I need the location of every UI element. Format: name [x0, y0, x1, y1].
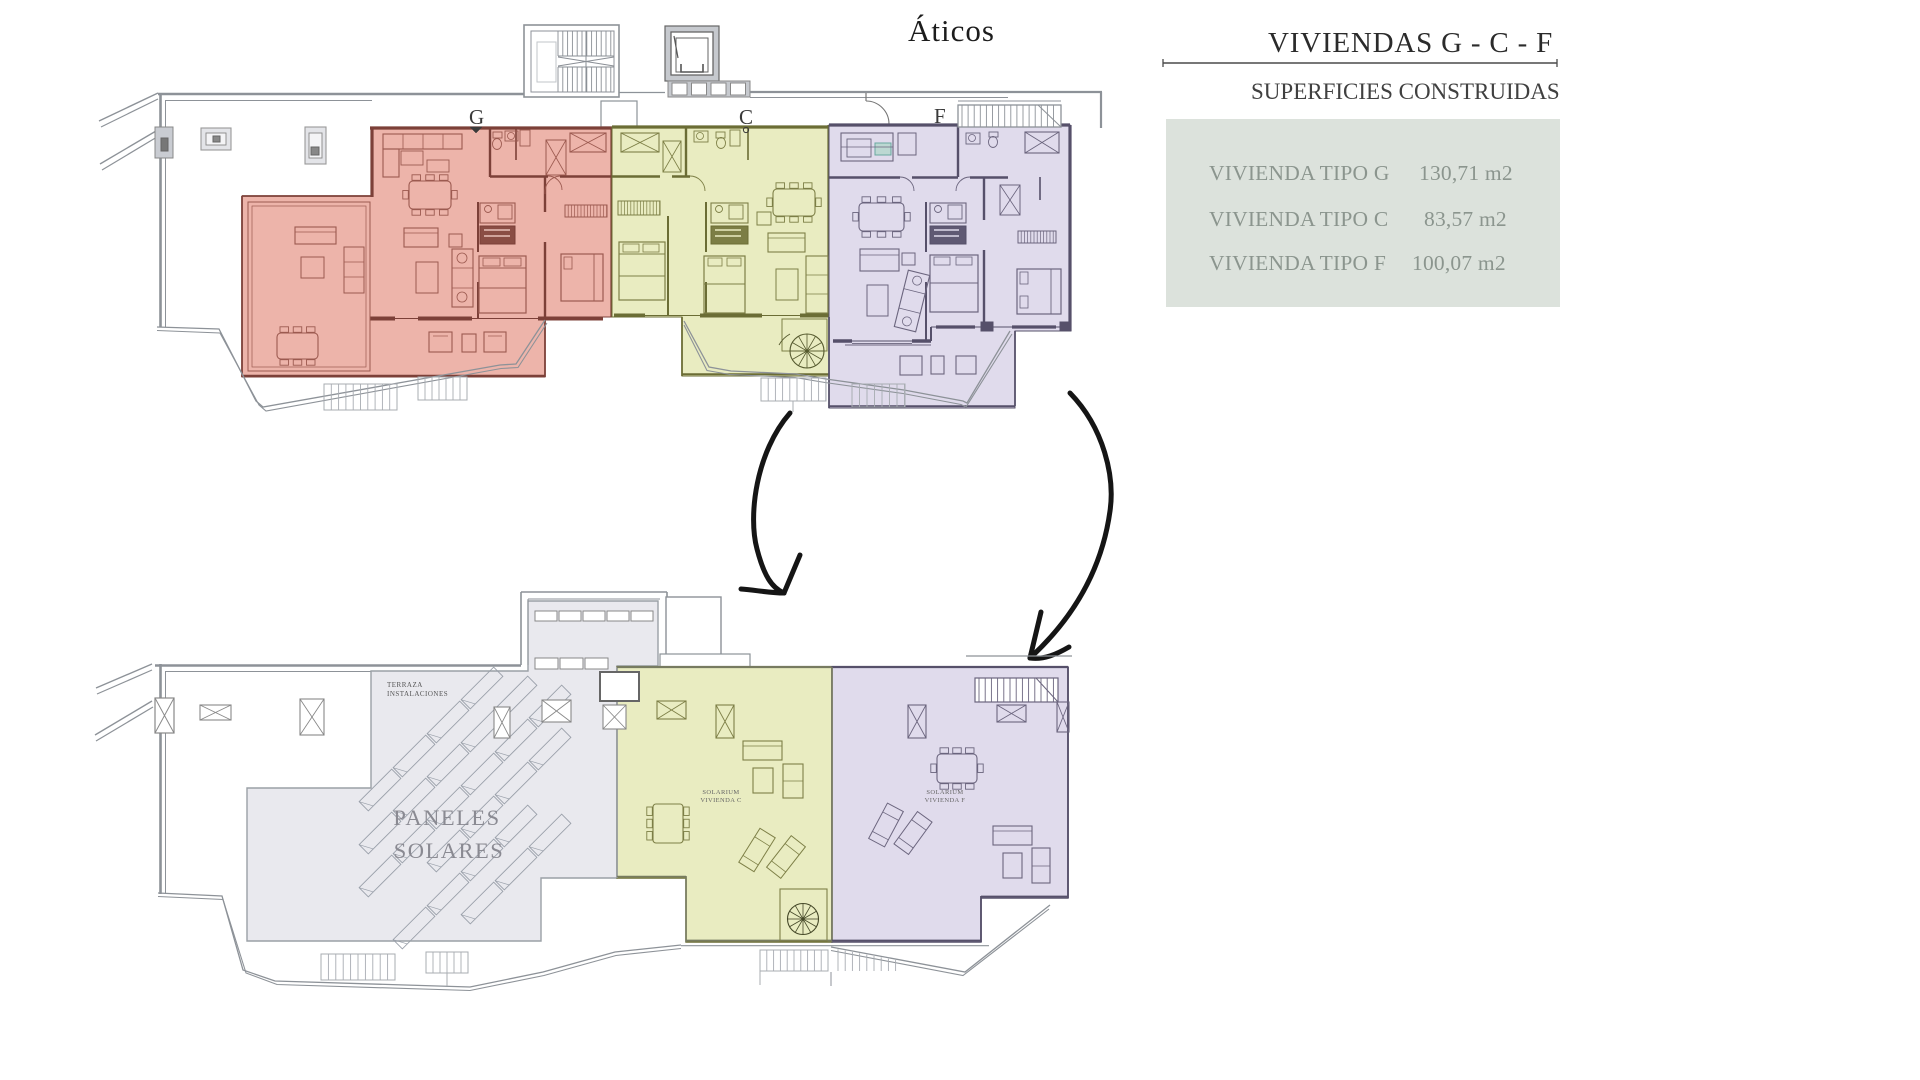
svg-text:TERRAZA: TERRAZA	[387, 681, 423, 689]
svg-text:83,57 m2: 83,57 m2	[1424, 207, 1507, 231]
svg-text:VIVIENDAS G - C - F: VIVIENDAS G - C - F	[1268, 27, 1553, 59]
svg-text:130,71 m2: 130,71 m2	[1419, 161, 1513, 185]
svg-text:F: F	[934, 104, 946, 128]
svg-text:SOLARES: SOLARES	[394, 838, 505, 863]
svg-text:VIVIENDA F: VIVIENDA F	[925, 797, 966, 804]
svg-text:100,07 m2: 100,07 m2	[1412, 251, 1506, 275]
svg-text:VIVIENDA TIPO C: VIVIENDA TIPO C	[1209, 207, 1388, 231]
svg-text:VIVIENDA TIPO G: VIVIENDA TIPO G	[1209, 161, 1390, 185]
svg-text:SOLARIUM: SOLARIUM	[926, 789, 963, 796]
svg-text:INSTALACIONES: INSTALACIONES	[387, 690, 448, 698]
svg-text:PANELES: PANELES	[393, 805, 500, 830]
svg-text:C: C	[739, 105, 753, 129]
svg-text:SOLARIUM: SOLARIUM	[702, 789, 739, 796]
svg-text:G: G	[469, 105, 484, 129]
svg-text:VIVIENDA TIPO F: VIVIENDA TIPO F	[1209, 251, 1386, 275]
svg-text:SUPERFICIES CONSTRUIDAS: SUPERFICIES CONSTRUIDAS	[1251, 79, 1560, 104]
svg-text:VIVIENDA C: VIVIENDA C	[700, 797, 741, 804]
svg-text:Áticos: Áticos	[908, 13, 995, 48]
